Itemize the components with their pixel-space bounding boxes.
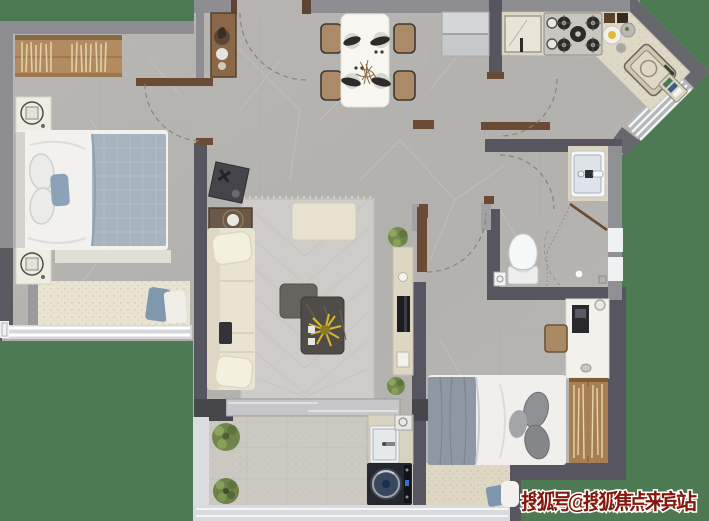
svg-text:搜狐号@搜狐焦点来宾站: 搜狐号@搜狐焦点来宾站 — [521, 490, 697, 514]
